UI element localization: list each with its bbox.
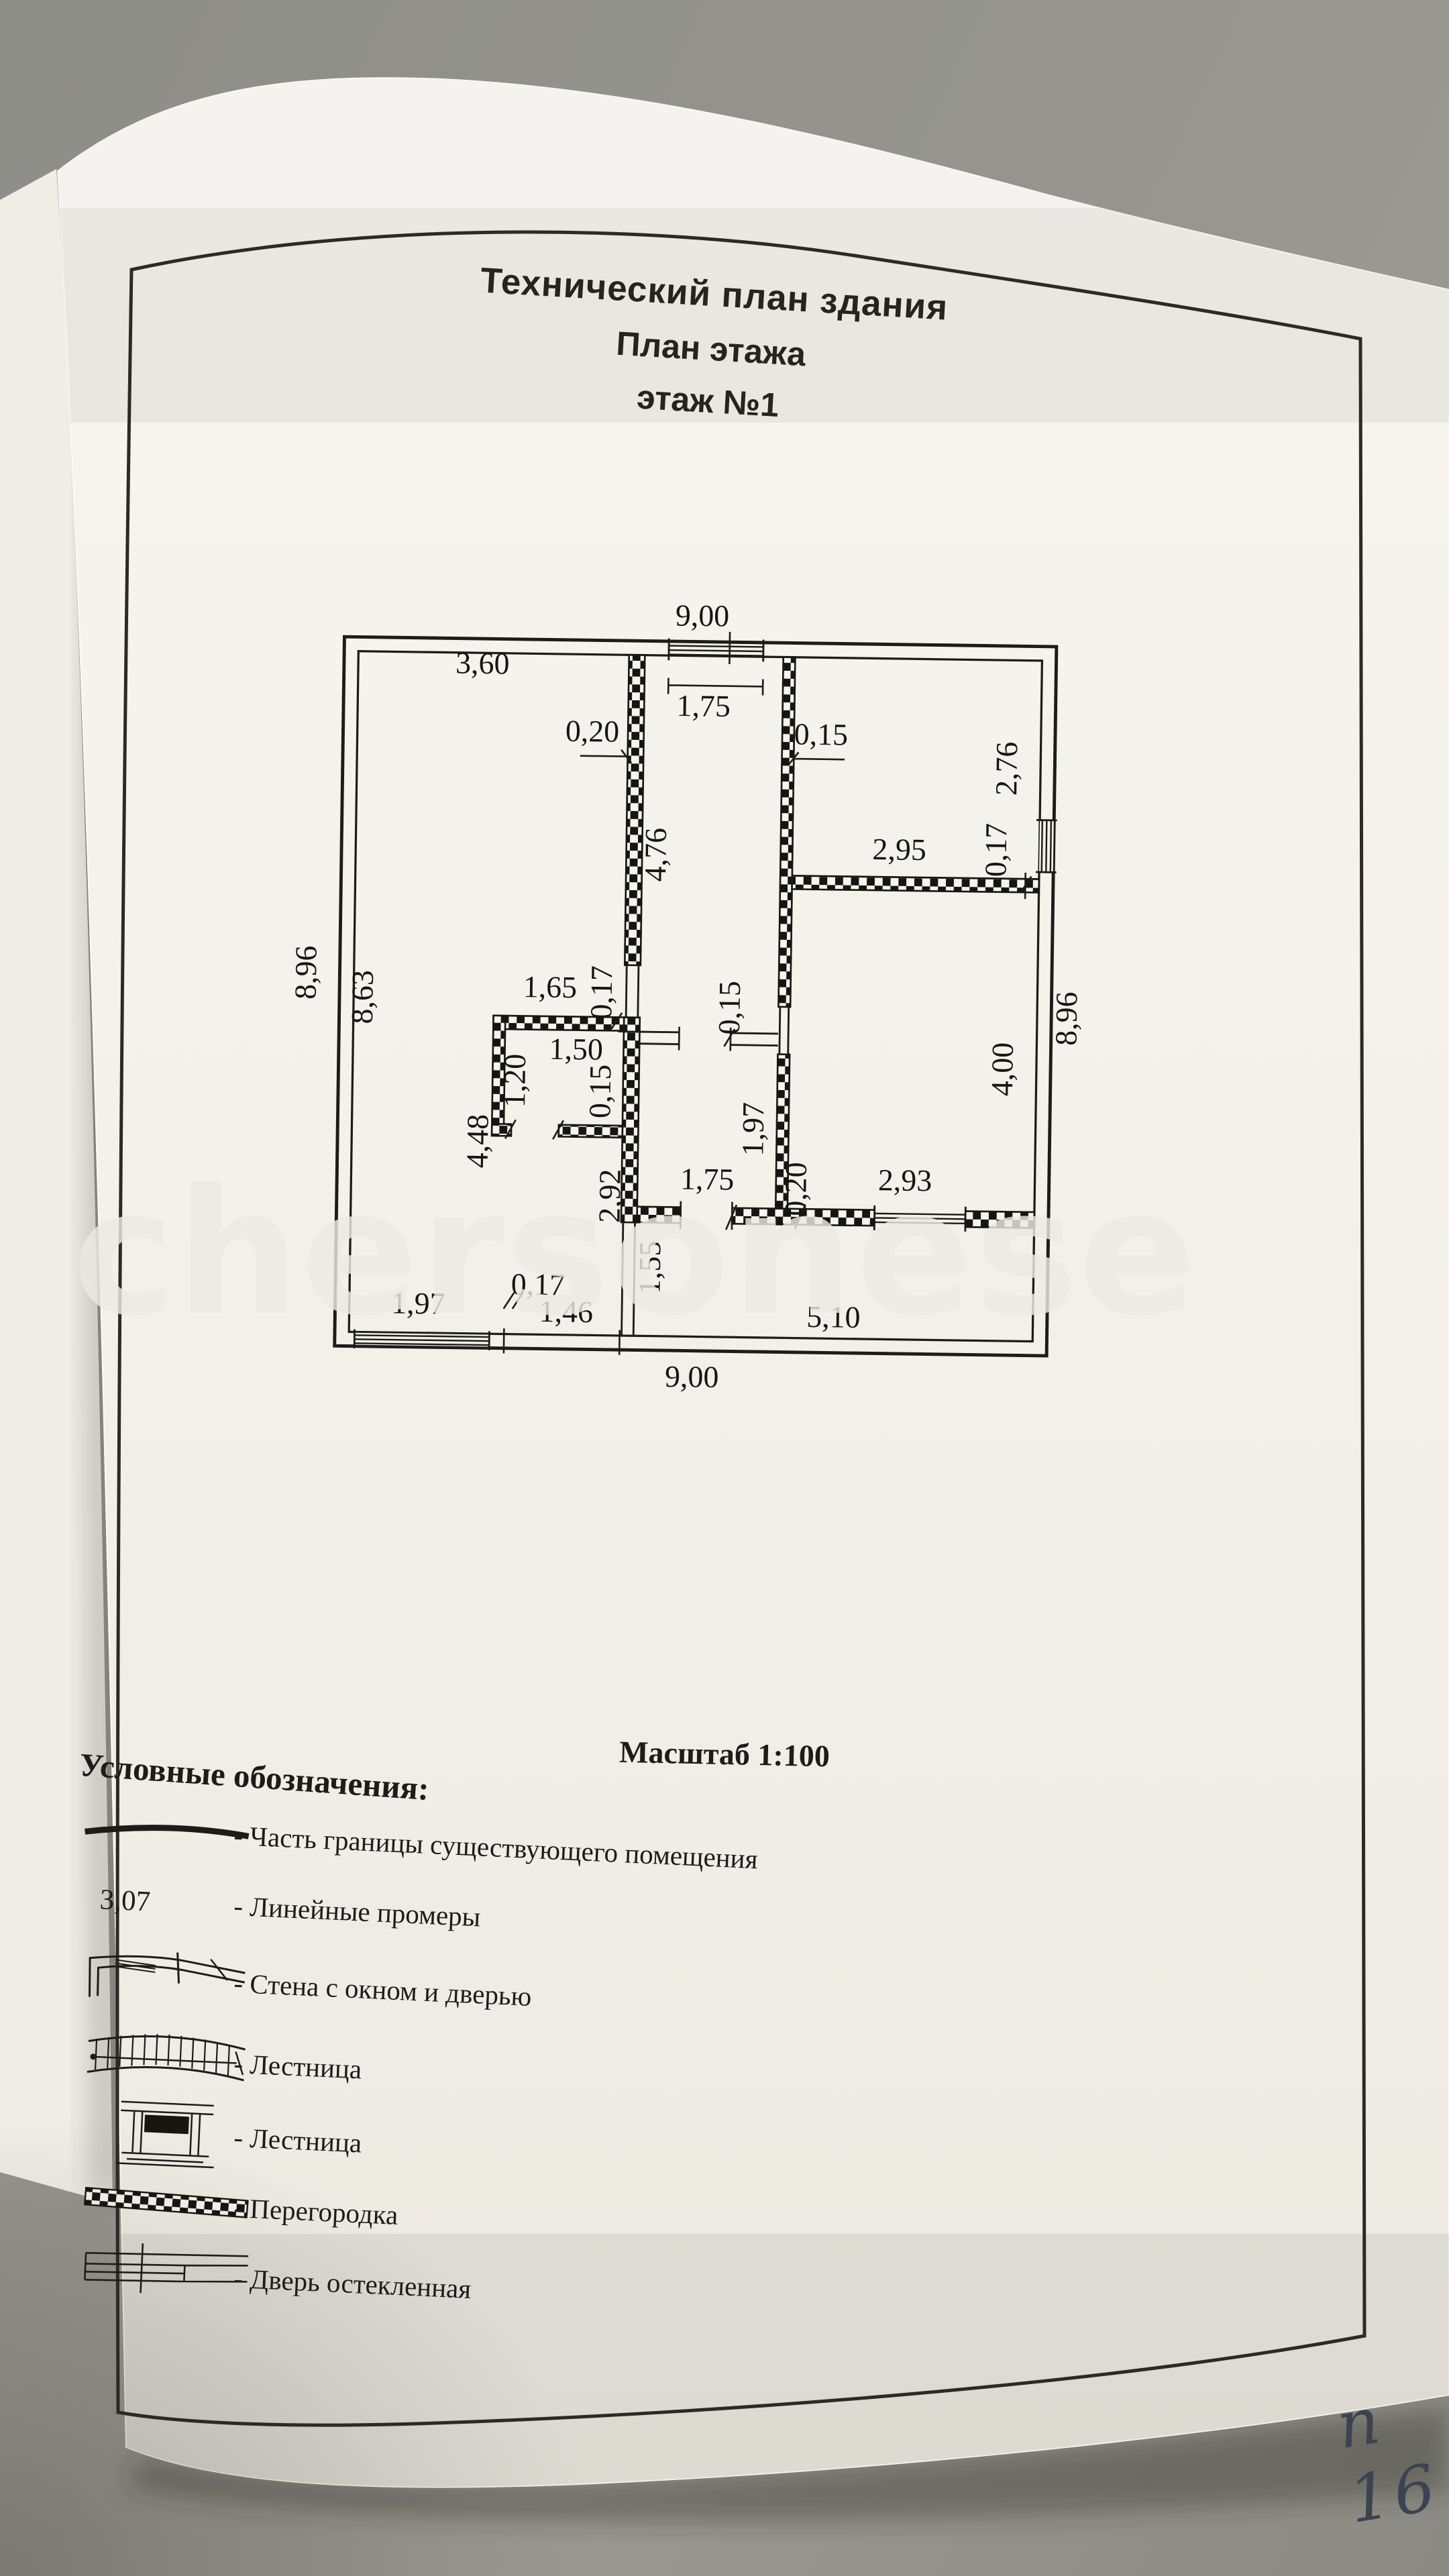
plan-dimension-label: 5,10 [806,1299,861,1334]
plan-dimension-label: 9,00 [676,598,730,633]
stairs-elevation-icon [74,2092,258,2177]
plan-dimension-label: 4,76 [638,828,673,882]
plan-dimension-label: 0,15 [794,717,848,752]
glazed-door-icon [74,2233,258,2318]
handwritten-note: п 16 [1332,2373,1449,2538]
plan-dimension-label: 2,92 [592,1169,627,1223]
partition-icon [74,2162,258,2247]
plan-dimension-label: 0,20 [778,1162,813,1216]
plan-dimension-labels: 9,003,601,750,200,152,764,762,950,178,96… [289,593,1089,1399]
plan-dimension-label: 1,50 [549,1032,603,1067]
legend-item-label: - Лестница [233,2121,363,2159]
plan-dimension-label: 0,15 [712,981,747,1035]
plan-dimension-label: 1,46 [539,1294,593,1329]
plan-dimension-label: 1,97 [735,1102,770,1157]
plan-dimension-label: 1,97 [391,1286,445,1321]
plan-dimension-label: 0,15 [582,1064,617,1118]
linear-measure-sample: 3,07 [99,1883,151,1918]
document-content: Технический план здания План этажа этаж … [0,0,1449,2576]
plan-dimension-label: 1,55 [632,1240,667,1295]
scale-label: Масштаб 1:100 [470,1731,980,1777]
outer-walls [335,637,1057,1356]
document-title: Технический план здания План этажа этаж … [372,254,1050,441]
legend-item-label: - Лестница [233,2047,363,2086]
plan-dimension-label: 8,63 [345,970,380,1024]
plan-dimension-label: 0,17 [978,823,1013,877]
legend-item-label: - Стена с окном и дверью [233,1967,533,2012]
plan-dimension-label: 2,93 [878,1163,932,1197]
plan-dimension-label: 3,60 [455,645,510,680]
glazed-door-opening [874,1205,965,1232]
legend-item-label: - Линейные промеры [233,1890,482,1933]
plan-dimension-label: 1,75 [676,688,731,723]
plan-dimension-label: 4,00 [985,1042,1020,1096]
plan-dimension-label: 0,17 [584,965,619,1020]
plan-dimension-label: 4,48 [460,1114,495,1169]
plan-dimension-label: 1,20 [497,1053,532,1108]
wall-with-window-and-door-icon [74,1937,258,2023]
plan-dimension-label: 1,65 [523,969,577,1004]
legend-item-label: - Перегородка [233,2192,399,2231]
plan-dimension-label: 2,76 [989,741,1024,796]
plan-dimension-label: 8,96 [289,945,323,1000]
plan-dimension-label: 9,00 [665,1359,719,1394]
legend-item-label: - Дверь остекленная [233,2262,472,2305]
plan-dimension-label: 2,95 [872,832,926,867]
floor-plan-drawing: 9,003,601,750,200,152,764,762,950,178,96… [289,585,1092,1431]
photo-of-document: Технический план здания План этажа этаж … [0,0,1449,2576]
plan-dimension-label: 0,20 [566,714,620,749]
plan-dimension-label: 1,75 [680,1161,735,1196]
plan-dimension-label: 8,96 [1049,991,1083,1046]
